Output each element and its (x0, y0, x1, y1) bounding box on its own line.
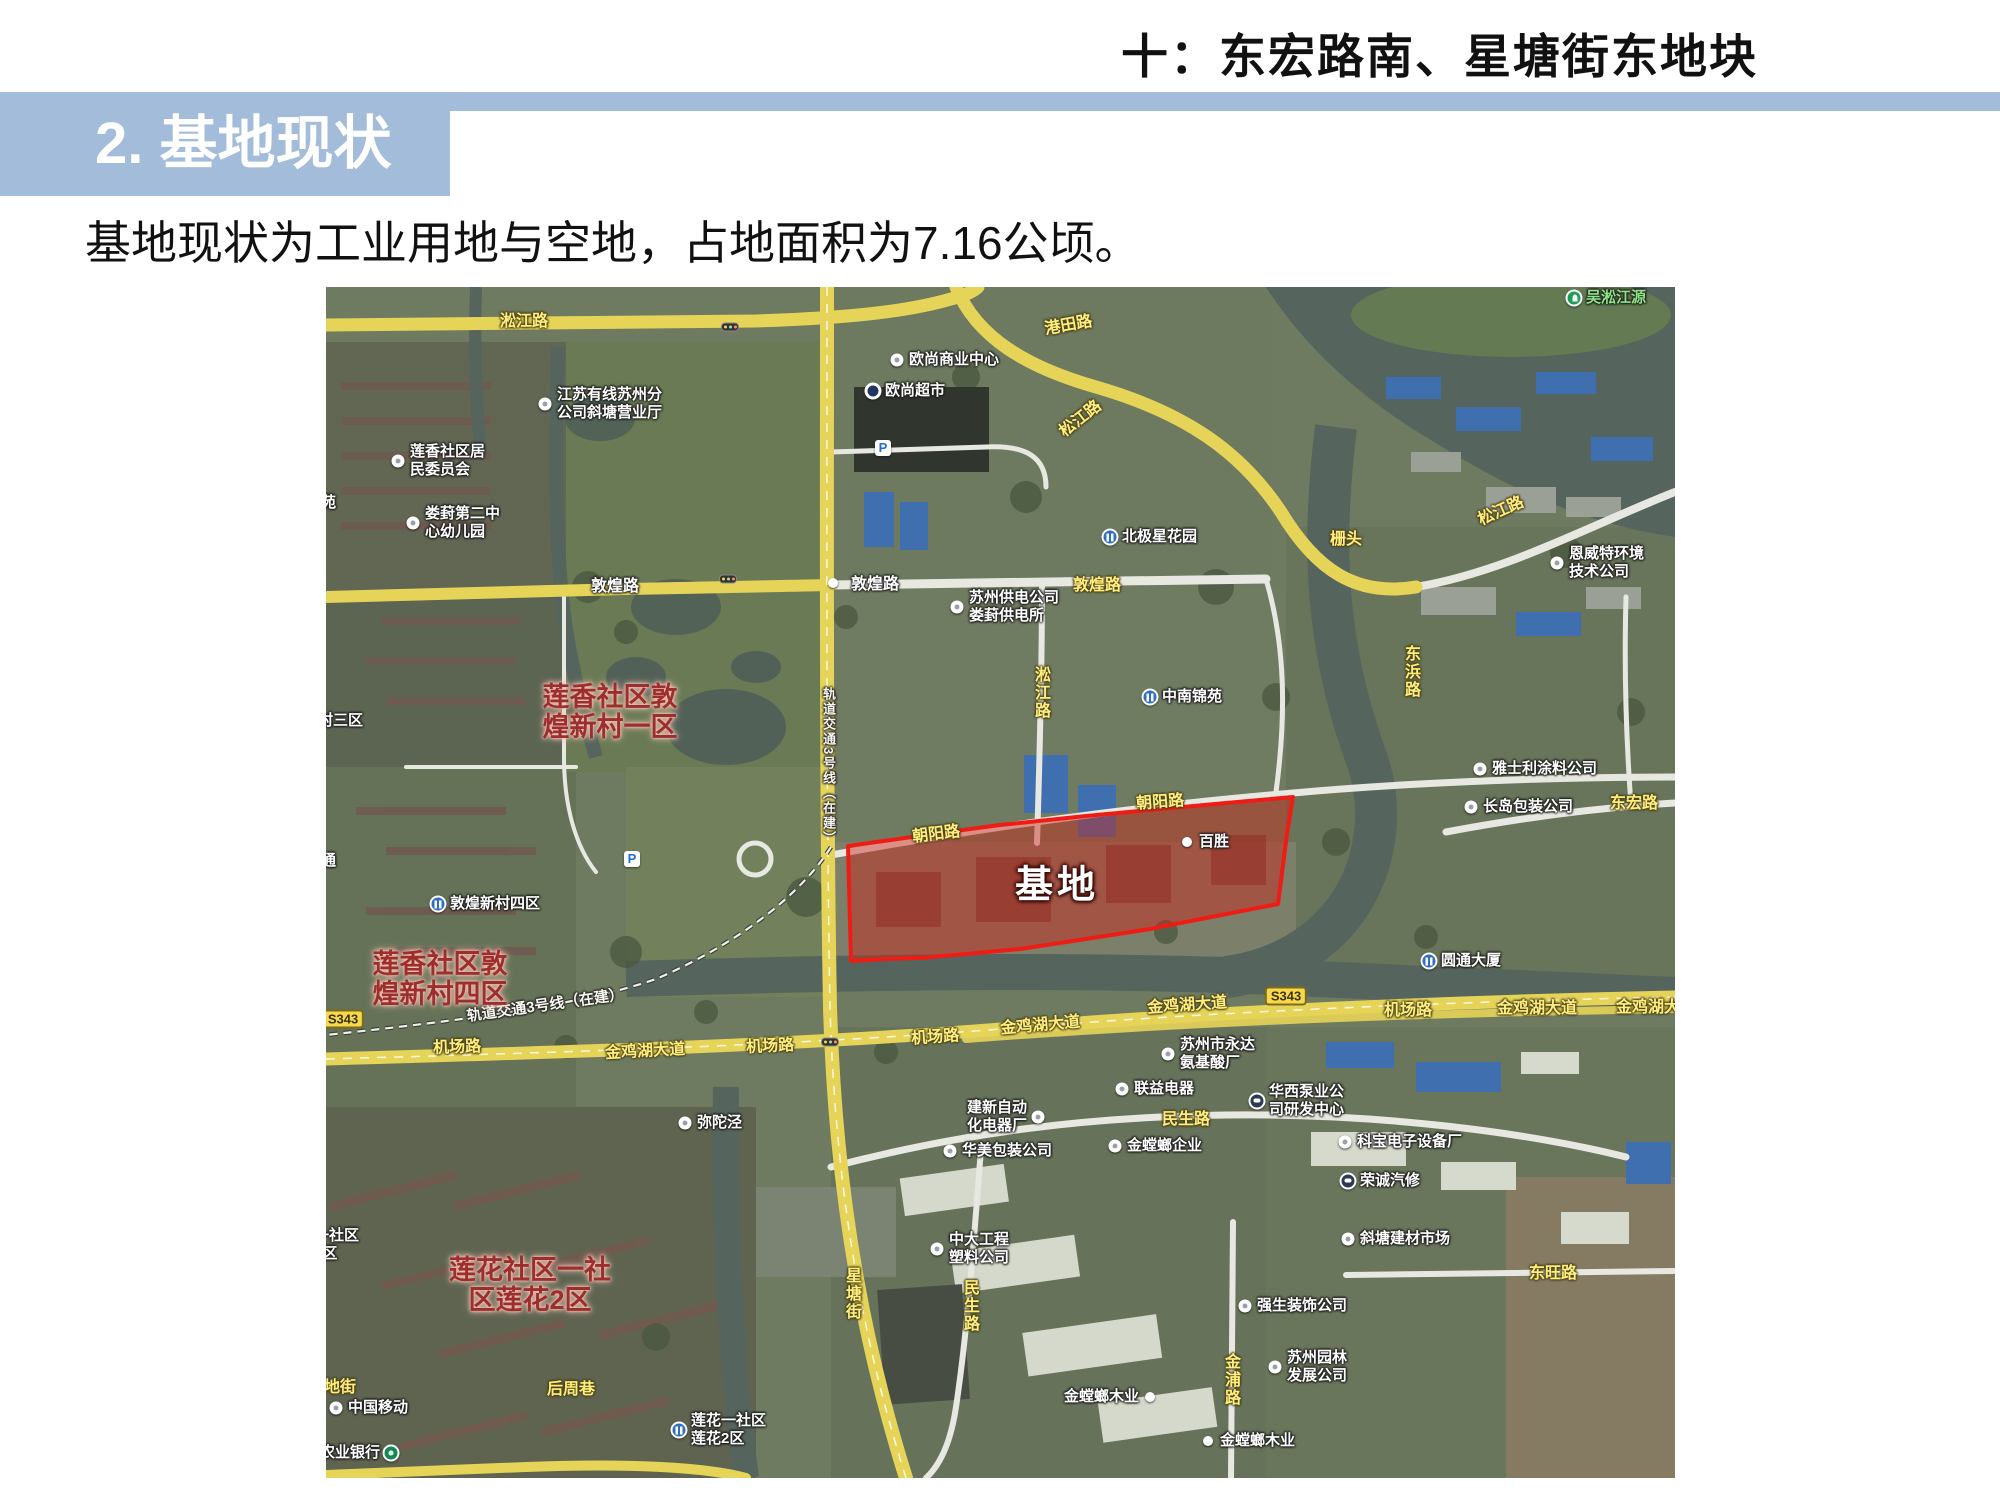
poi-label: 恩威特环境技术公司 (1569, 545, 1644, 581)
building-icon (1142, 689, 1159, 706)
label-line: 司研发中心 (1269, 1101, 1344, 1119)
district-label: 莲香社区敦煌新村一区 (543, 682, 678, 742)
label-line: 公司斜塘营业厅 (557, 404, 662, 422)
label-line: 建新自动 (967, 1099, 1027, 1117)
district-label: 莲花社区一社区莲花2区 (449, 1255, 611, 1315)
label-line: 欧尚超市 (885, 382, 945, 400)
poi-label: 苏州园林发展公司 (1287, 1349, 1347, 1385)
road-label: 港田路 (1042, 307, 1093, 339)
road-label: 敦煌路 (851, 570, 899, 594)
poi-label: 长岛包装公司 (1483, 798, 1573, 816)
label-line: 苏州园林 (1287, 1349, 1347, 1367)
label-line: 科宝电子设备厂 (1357, 1133, 1462, 1151)
label-line: 敦煌新村四区 (450, 895, 540, 913)
poi-label: 斜塘建材市场 (1360, 1230, 1450, 1248)
label-line: 雅士利涂料公司 (1492, 760, 1597, 778)
label-line: 田苑 (326, 494, 336, 512)
smalldot-icon (1145, 1392, 1155, 1402)
road-label: 金鸡湖大道 (1497, 994, 1577, 1018)
poi-label: 建新自动化电器厂 (967, 1099, 1027, 1135)
map-edge-label: 一社区4区 (326, 1227, 359, 1263)
map-edge-label: 田苑 (326, 494, 336, 512)
poi-label: 联益电器 (1134, 1080, 1194, 1098)
label-line: 氨基酸厂 (1180, 1054, 1255, 1072)
road-label: 松江路 (1473, 488, 1527, 529)
label-line: 联益电器 (1134, 1080, 1194, 1098)
poi-label: 百胜 (1199, 833, 1229, 851)
poi-label: 农业银行 (326, 1444, 380, 1462)
dot-icon (1162, 1048, 1175, 1061)
route-shield: S343 (326, 1010, 364, 1029)
road-label: 民生路 (957, 1279, 981, 1333)
label-line: 区莲花2区 (449, 1285, 611, 1315)
traffic-light-icon (719, 575, 737, 584)
road-label: 金鸡湖大道 (1146, 988, 1227, 1018)
road-label: 机场路 (910, 1021, 960, 1048)
building-icon (1421, 953, 1438, 970)
map-labels: 淞江路港田路松江路松江路淞江路东浜路敦煌路敦煌路敦煌路朝阳路朝阳路东宏路民生路民… (326, 287, 1675, 1478)
road-label: 淞江路 (1028, 666, 1052, 720)
road-point-icon (828, 578, 838, 588)
label-line: 莲香社区敦 (373, 949, 508, 979)
label-line: 长岛包装公司 (1483, 798, 1573, 816)
poi-label: 苏州市永达氨基酸厂 (1180, 1036, 1255, 1072)
road-label: 淞江路 (500, 307, 548, 331)
poi-label: 强生装饰公司 (1257, 1297, 1347, 1315)
bus-icon (1340, 1173, 1357, 1190)
poi-label: 圆通大厦 (1441, 952, 1501, 970)
smalldot-icon (1203, 1436, 1213, 1446)
road-label: 金浦路 (1218, 1353, 1242, 1407)
road-label: 金鸡湖大道 (604, 1035, 685, 1063)
traffic-light-icon (721, 323, 739, 332)
poi-label: 吴淞江源 (1586, 289, 1646, 307)
label-line: 娄葑供电所 (969, 607, 1059, 625)
label-line: 中国移动 (348, 1399, 408, 1417)
road-label: 民生路 (1162, 1105, 1210, 1129)
label-line: 化电器厂 (967, 1117, 1027, 1135)
label-line: 娄葑第二中 (425, 505, 500, 523)
poi-label: 中南锦苑 (1162, 688, 1222, 706)
auchan-icon (865, 383, 882, 400)
label-line: 北极星花园 (1122, 528, 1197, 546)
road-label: 朝阳路 (911, 817, 962, 847)
poi-label: 雅士利涂料公司 (1492, 760, 1597, 778)
label-line: 恩威特环境 (1569, 545, 1644, 563)
label-line: 百胜 (1199, 833, 1229, 851)
presentation-slide: 十：东宏路南、星塘街东地块 2. 基地现状 基地现状为工业用地与空地，占地面积为… (0, 0, 2000, 1500)
label-line: 农业银行 (326, 1444, 380, 1462)
road-label: 东旺路 (1529, 1259, 1577, 1283)
poi-label: 金螳螂木业 (1064, 1388, 1139, 1406)
label-line: 华美包装公司 (962, 1142, 1052, 1160)
traffic-light-icon (821, 1038, 839, 1047)
label-line: 莲花2区 (691, 1430, 766, 1448)
road-label: 敦煌路 (1073, 571, 1121, 595)
satellite-map: 淞江路港田路松江路松江路淞江路东浜路敦煌路敦煌路敦煌路朝阳路朝阳路东宏路民生路民… (326, 287, 1675, 1478)
road-label: 机场路 (433, 1032, 482, 1058)
label-line: 圆通大厦 (1441, 952, 1501, 970)
dot-icon (951, 601, 964, 614)
bank-icon (383, 1445, 400, 1462)
label-line: 苏州市永达 (1180, 1036, 1255, 1054)
label-line: 莲香社区敦 (543, 682, 678, 712)
label-line: 苏州供电公司 (969, 589, 1059, 607)
poi-label: 金螳螂企业 (1127, 1137, 1202, 1155)
label-line: 江苏有线苏州分 (557, 386, 662, 404)
poi-label: 江苏有线苏州分公司斜塘营业厅 (557, 386, 662, 422)
section-header-block: 2. 基地现状 (0, 92, 450, 196)
road-label: 松江路 (1053, 393, 1106, 441)
dot-icon (1474, 763, 1487, 776)
label-line: 中大工程 (949, 1231, 1009, 1249)
poi-label: 金螳螂木业 (1220, 1432, 1295, 1450)
dot-icon (1032, 1111, 1045, 1124)
label-line: 民委员会 (410, 461, 485, 479)
poi-label: 莲香社区居民委员会 (410, 443, 485, 479)
body-text: 基地现状为工业用地与空地，占地面积为7.16公顷。 (85, 207, 1141, 273)
poi-label: 娄葑第二中心幼儿园 (425, 505, 500, 541)
bus-icon (1249, 1093, 1266, 1110)
poi-label: 科宝电子设备厂 (1357, 1133, 1462, 1151)
label-line: 吴淞江源 (1586, 289, 1646, 307)
label-line: 通 (326, 852, 336, 870)
label-line: 一社区 (326, 1227, 359, 1245)
dot-icon (330, 1402, 343, 1415)
road-label: 金鸡湖大道 (999, 1008, 1081, 1039)
dot-icon (392, 455, 405, 468)
poi-label: 弥陀泾 (697, 1114, 742, 1132)
poi-label: 华西泵业公司研发中心 (1269, 1083, 1344, 1119)
dot-icon (1342, 1233, 1355, 1246)
label-line: 金螳螂木业 (1064, 1388, 1139, 1406)
poi-label: 敦煌新村四区 (450, 895, 540, 913)
road-label: 金鸡湖大道 (1616, 993, 1675, 1017)
building-icon (430, 896, 447, 913)
park-icon (1566, 290, 1583, 307)
label-line: 欧尚商业中心 (909, 351, 999, 369)
dot-icon (539, 398, 552, 411)
building-icon (671, 1422, 688, 1439)
dot-icon (931, 1243, 944, 1256)
road-label: 星塘街 (839, 1267, 863, 1321)
label-line: 发展公司 (1287, 1367, 1347, 1385)
label-line: 心幼儿园 (425, 523, 500, 541)
label-line: 斜塘建材市场 (1360, 1230, 1450, 1248)
label-line: 金螳螂企业 (1127, 1137, 1202, 1155)
poi-label: 欧尚商业中心 (909, 351, 999, 369)
poi-label: 莲花一社区莲花2区 (691, 1412, 766, 1448)
road-label: 后周巷 (547, 1375, 595, 1399)
label-line: 村三区 (326, 712, 363, 730)
road-label: 机场路 (745, 1031, 794, 1057)
label-line: 技术公司 (1569, 563, 1644, 581)
road-label: 机场路 (1384, 996, 1432, 1020)
parking-icon (875, 440, 891, 456)
dot-icon (1116, 1083, 1129, 1096)
poi-label: 华美包装公司 (962, 1142, 1052, 1160)
dot-icon (407, 517, 420, 530)
poi-label: 欧尚超市 (885, 382, 945, 400)
map-edge-label: 通 (326, 852, 336, 870)
dot-icon (679, 1117, 692, 1130)
label-line: 煌新村四区 (373, 979, 508, 1009)
label-line: 强生装饰公司 (1257, 1297, 1347, 1315)
page-title: 十：东宏路南、星塘街东地块 (1121, 18, 1758, 87)
poi-label: 北极星花园 (1122, 528, 1197, 546)
road-label: 地街 (326, 1373, 356, 1397)
road-label: 朝阳路 (1135, 786, 1185, 813)
label-line: 荣诚汽修 (1360, 1172, 1420, 1190)
dot-icon (1269, 1361, 1282, 1374)
label-line: 华西泵业公 (1269, 1083, 1344, 1101)
route-shield: S343 (1265, 987, 1307, 1006)
poi-label: 荣诚汽修 (1360, 1172, 1420, 1190)
label-line: 莲花一社区 (691, 1412, 766, 1430)
smalldot-icon (1182, 837, 1192, 847)
road-label: 东宏路 (1610, 789, 1658, 813)
parking-icon (624, 851, 640, 867)
poi-label: 中国移动 (348, 1399, 408, 1417)
district-label: 莲香社区敦煌新村四区 (373, 949, 508, 1009)
label-line: 煌新村一区 (543, 712, 678, 742)
label-line: 弥陀泾 (697, 1114, 742, 1132)
label-line: 莲花社区一社 (449, 1255, 611, 1285)
dot-icon (1109, 1140, 1122, 1153)
label-line: 4区 (326, 1245, 359, 1263)
building-icon (1102, 529, 1119, 546)
poi-label: 中大工程塑料公司 (949, 1231, 1009, 1267)
dot-icon (891, 354, 904, 367)
map-edge-label: 村三区 (326, 712, 363, 730)
label-line: 莲香社区居 (410, 443, 485, 461)
section-title: 2. 基地现状 (95, 92, 392, 196)
road-label: 东浜路 (1398, 645, 1422, 699)
label-line: 塑料公司 (949, 1249, 1009, 1267)
metro-line-label: 轨道交通3号线（在建） (819, 687, 838, 846)
dot-icon (1551, 557, 1564, 570)
dot-icon (1465, 801, 1478, 814)
label-line: 中南锦苑 (1162, 688, 1222, 706)
dot-icon (1339, 1136, 1352, 1149)
site-label: 基地 (1015, 854, 1099, 909)
dot-icon (944, 1145, 957, 1158)
road-label: 栅头 (1330, 525, 1362, 549)
road-label: 敦煌路 (591, 572, 639, 596)
label-line: 金螳螂木业 (1220, 1432, 1295, 1450)
poi-label: 苏州供电公司娄葑供电所 (969, 589, 1059, 625)
dot-icon (1239, 1300, 1252, 1313)
